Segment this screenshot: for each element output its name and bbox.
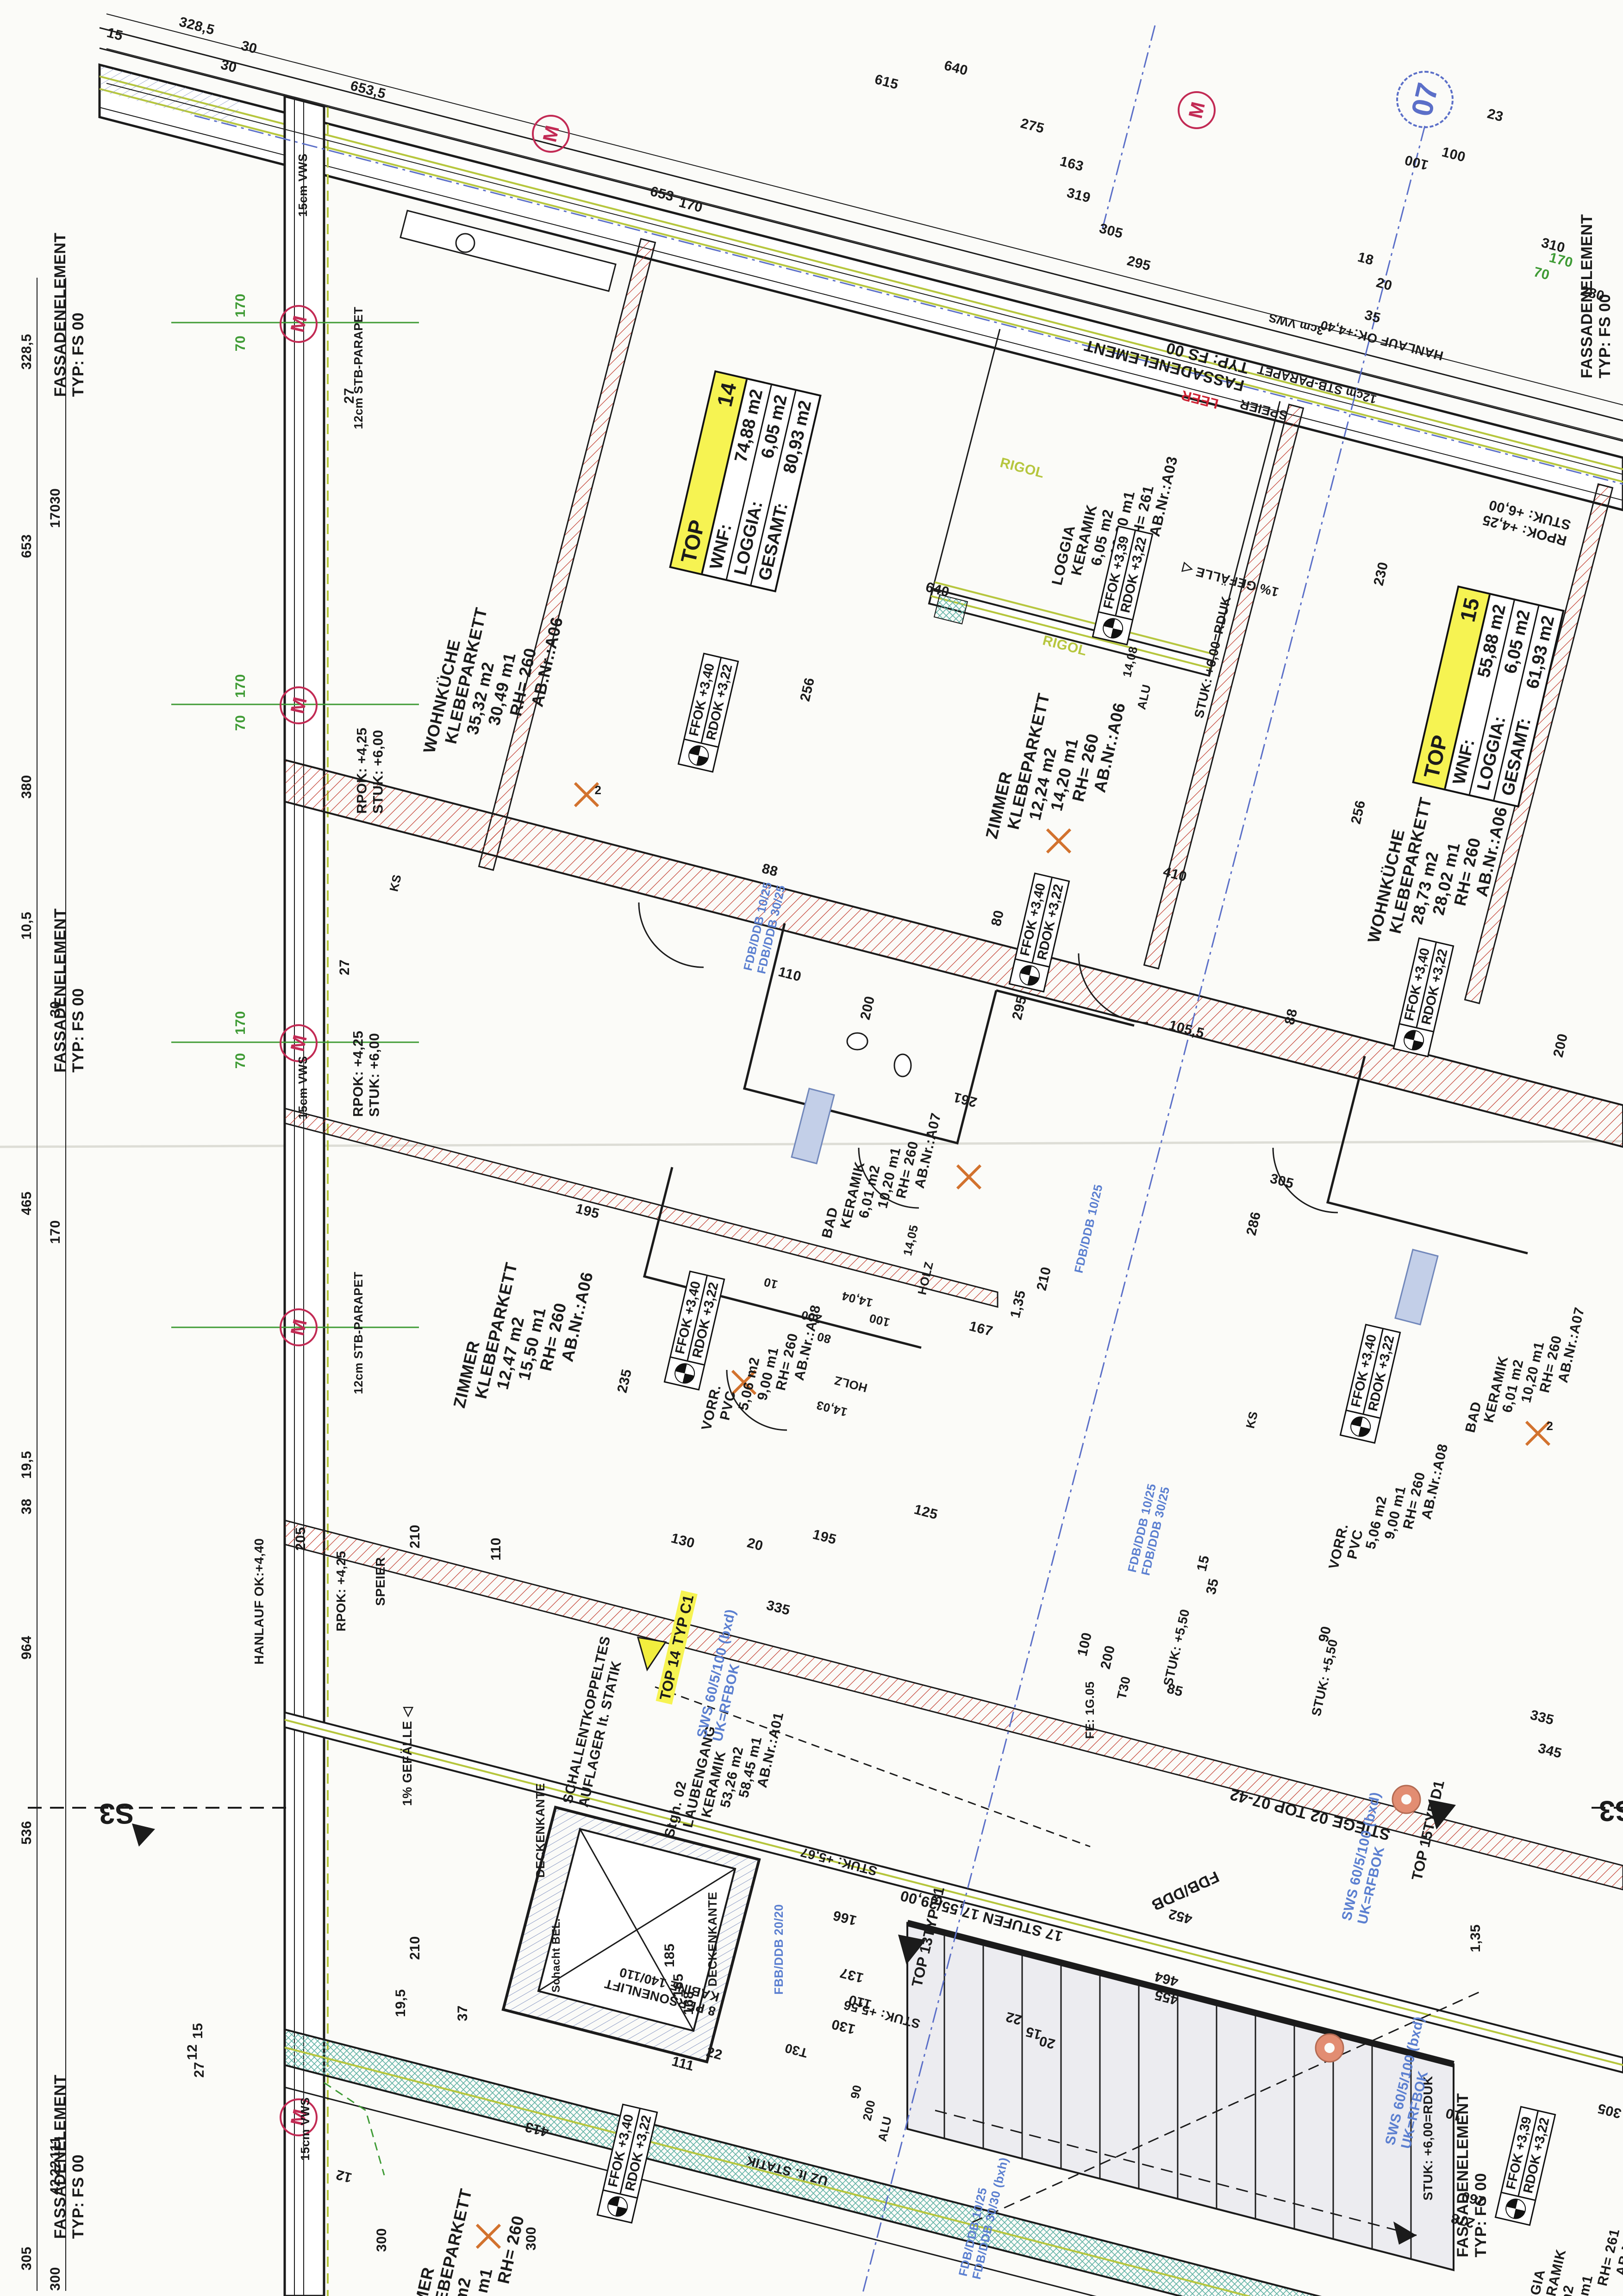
slab-opening-note: FBB/DDB 20/20 (772, 1904, 786, 1995)
facade-element-label: FASSADENELEMENTTYP: FS 00 (51, 232, 87, 397)
sheet-number: 07 (1405, 80, 1445, 119)
floor-plan-sheet: 07 S3 S3 M M M M M M M TOP14 WNF:74,88 m… (0, 0, 1623, 2296)
dimension-label: 465 (19, 1191, 35, 1215)
element-tag: FE: 1G.05 (1083, 1681, 1097, 1739)
dimension-label: 210 (407, 1524, 424, 1549)
dimension-label: 70 (233, 336, 249, 351)
dimension-label: 300 (374, 2228, 390, 2252)
dimension-label: 170 (48, 504, 64, 528)
dimension-label: 300 (524, 2227, 540, 2251)
dimension-label: 1,35 (1468, 1924, 1484, 1952)
spout-label: SPEIER (373, 1557, 388, 1606)
slab-edge-label: DECKENKANTE (534, 1783, 548, 1878)
dimension-label: 210 (407, 1936, 424, 1960)
dimension-label: 328,5 (19, 334, 35, 370)
dimension-label: 19,5 (393, 1989, 409, 2017)
dimension-label: 653 (19, 534, 35, 558)
dimension-label: 19,5 (19, 1451, 35, 1479)
sheet-number-bubble: 07 (1396, 71, 1454, 128)
survey-marker-m-icon: M (532, 115, 570, 153)
dimension-label: 111 (48, 2136, 64, 2159)
dimension-label: 964 (19, 1636, 35, 1660)
dimension-label: 170 (233, 1011, 249, 1035)
dimension-label: 536 (19, 1821, 35, 1845)
dimension-label: 12 (185, 2044, 201, 2060)
dimension-label: 170 (233, 674, 249, 698)
dimension-label: 70 (233, 1053, 249, 1069)
survey-marker-m-icon: M (280, 686, 318, 724)
section-marker-left: S3 (99, 1797, 134, 1830)
facade-layer-label: 15cm VWS (296, 154, 310, 217)
elevation-label: RPOK: +4,25 (334, 1551, 349, 1631)
dimension-label: 42 (48, 2179, 64, 2195)
dimension-label: 15 (190, 2023, 206, 2039)
dimension-label: 168 (681, 1991, 697, 2015)
dimension-label: 37 (455, 2005, 471, 2021)
slope-label: 1% GEFÄLLE ◁ (400, 1707, 415, 1806)
dimension-label: 38 (19, 1499, 35, 1514)
dimension-label: 170 (233, 293, 249, 317)
shaft-note: Schacht BEL. (550, 1918, 563, 1993)
dimension-label: 2 (1547, 1419, 1554, 1433)
elevation-label: RPOK: +4,25STUK: +6,00 (355, 728, 387, 814)
dimension-label: 300 (48, 2267, 64, 2291)
survey-marker-m-icon: M (280, 1308, 318, 1346)
dimension-label: 27 (192, 2062, 208, 2078)
dimension-label: 70 (233, 715, 249, 731)
dimension-label: 110 (488, 1537, 505, 1561)
dimension-label: 27 (342, 388, 358, 404)
dimension-label: 205 (293, 1527, 309, 1551)
survey-marker-m-icon: M (1178, 91, 1216, 129)
dimension-label: 185 (662, 1943, 678, 1967)
dimension-label: 305 (19, 2246, 35, 2271)
parapet-label: 12cm STB-PARAPET (352, 1272, 366, 1394)
dimension-label: 10,5 (19, 912, 35, 940)
dimension-label: 30 (48, 488, 64, 504)
facade-layer-label: 15cm VWS (296, 1056, 310, 1120)
elevation-label: RPOK: +4,25STUK: +6,00 (351, 1031, 383, 1117)
dimension-label: 22 (48, 2160, 64, 2176)
facade-element-label: FASSADENELEMENTTYP: FS 00 (51, 908, 87, 1072)
survey-marker-m-icon: M (280, 305, 318, 343)
handrail-label: HANLAUF OK:+4,40 (252, 1538, 267, 1664)
slab-edge-label: DECKENKANTE (706, 1892, 720, 1987)
section-marker-right: S3 (1599, 1794, 1623, 1827)
dimension-label: 170 (48, 1220, 64, 1244)
dimension-label: 380 (19, 775, 35, 799)
parapet-label: 12cm STB-PARAPET (352, 307, 366, 429)
dimension-label: 30 (48, 1001, 64, 1017)
dimension-label: 27 (337, 959, 353, 975)
dimension-label: 2 (595, 784, 602, 797)
facade-layer-label: 15cm VWS (299, 2097, 312, 2161)
